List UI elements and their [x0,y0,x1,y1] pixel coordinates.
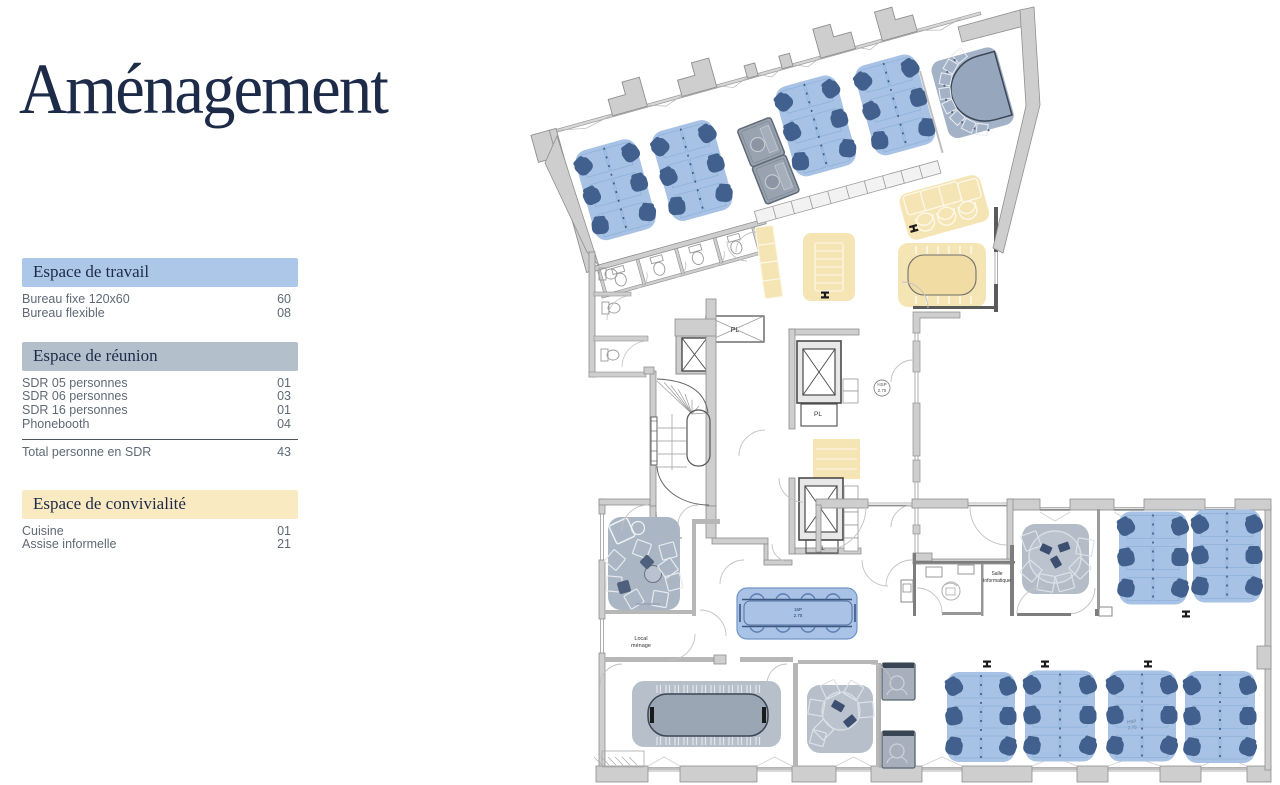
svg-text:2.75: 2.75 [794,613,803,618]
svg-text:PL: PL [814,411,822,418]
svg-text:16P: 16P [794,607,802,612]
svg-text:2.75: 2.75 [878,388,887,393]
svg-text:PL: PL [731,327,740,334]
svg-text:informatique: informatique [983,578,1011,584]
svg-text:2.75: 2.75 [1128,725,1138,731]
svg-text:Salle: Salle [991,571,1002,577]
svg-text:HSP: HSP [877,382,886,387]
svg-text:Local: Local [634,636,647,642]
svg-text:ménage: ménage [631,643,651,649]
svg-text:HSP: HSP [1127,719,1137,725]
